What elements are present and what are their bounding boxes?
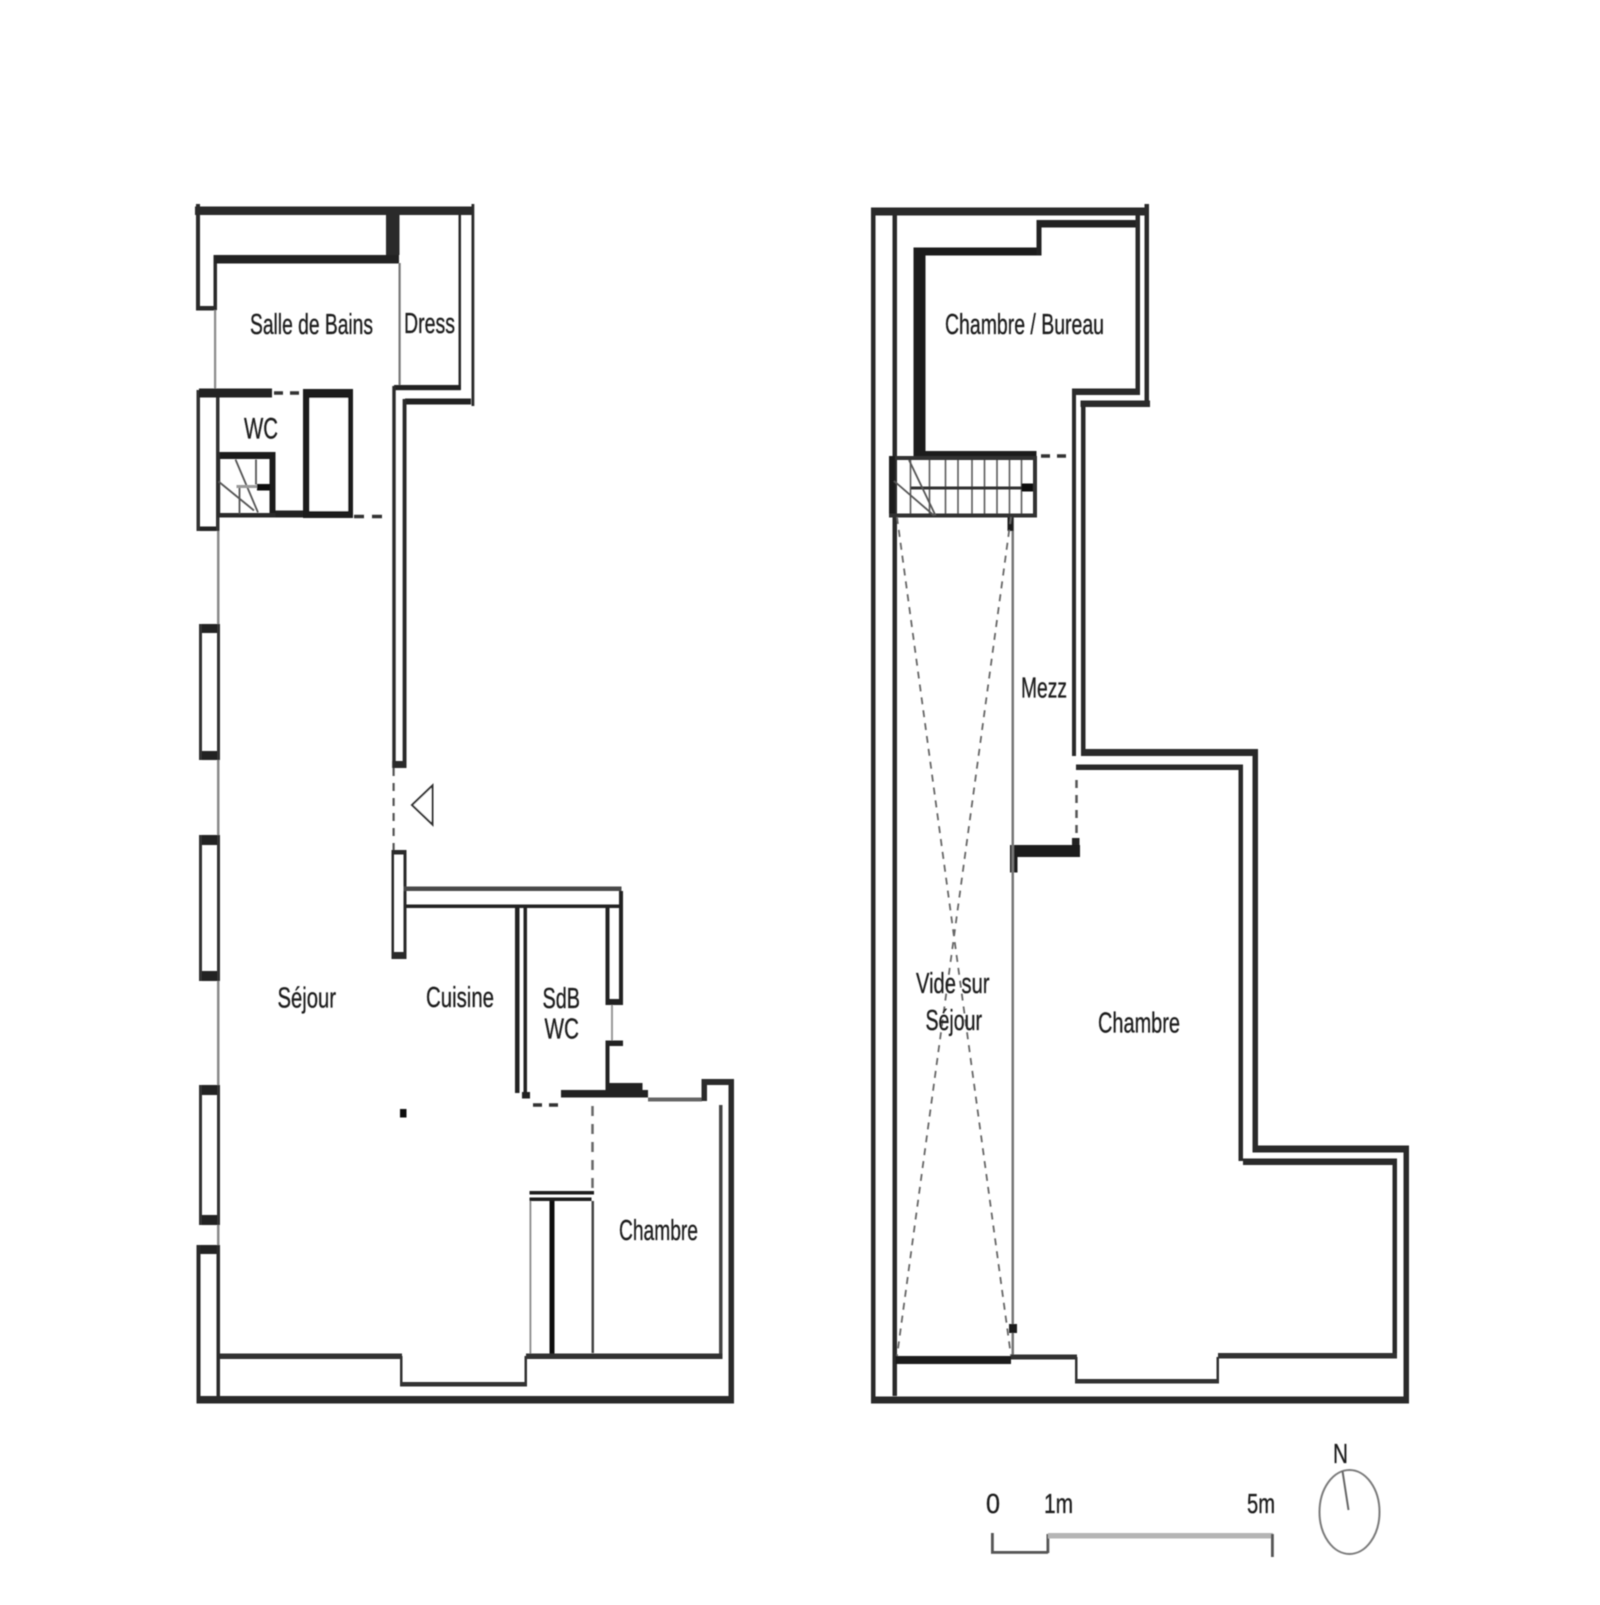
svg-text:Séjour: Séjour xyxy=(926,1005,983,1037)
svg-text:Dress: Dress xyxy=(404,308,455,340)
svg-text:Vide sur: Vide sur xyxy=(916,968,990,1000)
svg-text:WC: WC xyxy=(244,413,278,446)
svg-text:Chambre: Chambre xyxy=(1098,1008,1180,1040)
svg-text:Chambre: Chambre xyxy=(619,1215,698,1247)
svg-text:Mezz: Mezz xyxy=(1021,673,1067,705)
svg-text:Cuisine: Cuisine xyxy=(426,982,494,1014)
svg-text:0: 0 xyxy=(986,1488,1000,1519)
svg-text:WC: WC xyxy=(545,1014,580,1046)
svg-text:Séjour: Séjour xyxy=(278,983,337,1015)
svg-text:5m: 5m xyxy=(1247,1488,1275,1519)
svg-text:Salle de Bains: Salle de Bains xyxy=(250,309,373,341)
svg-text:Chambre / Bureau: Chambre / Bureau xyxy=(945,309,1104,341)
svg-text:1m: 1m xyxy=(1044,1488,1073,1519)
svg-text:SdB: SdB xyxy=(543,983,581,1015)
svg-text:N: N xyxy=(1333,1438,1348,1469)
